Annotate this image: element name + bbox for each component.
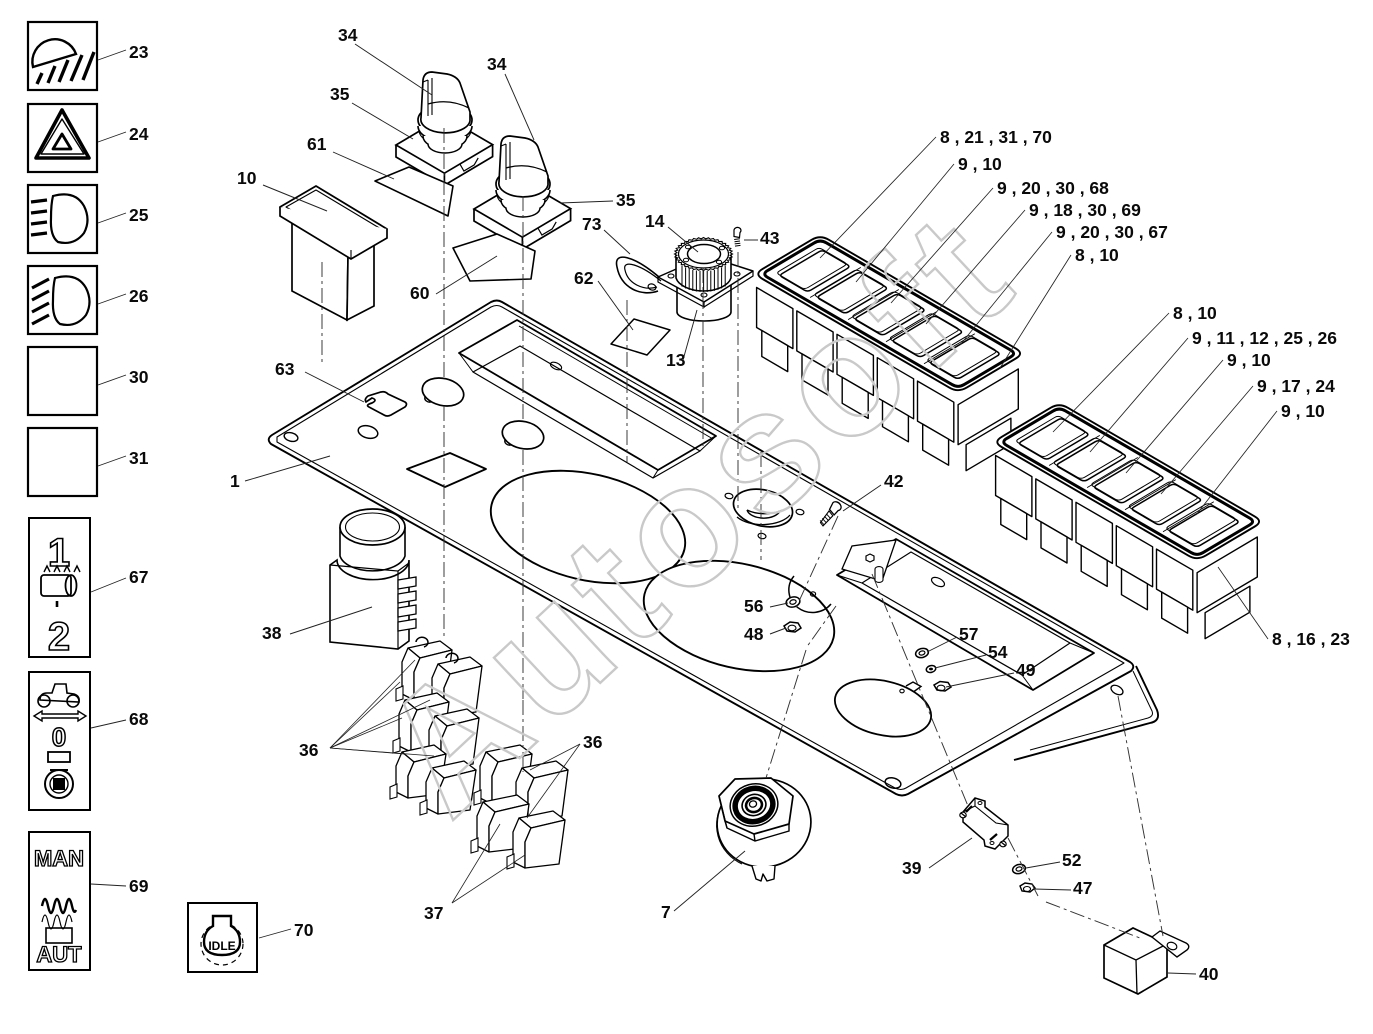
- svg-text:9 , 10: 9 , 10: [1227, 350, 1271, 370]
- svg-text:70: 70: [294, 920, 314, 940]
- svg-text:9 , 11 , 12 , 25 , 26: 9 , 11 , 12 , 25 , 26: [1192, 328, 1337, 348]
- svg-text:49: 49: [1016, 660, 1036, 680]
- svg-text:0: 0: [52, 722, 66, 752]
- svg-text:IDLE: IDLE: [208, 939, 235, 953]
- svg-text:37: 37: [424, 903, 443, 923]
- svg-text:14: 14: [645, 211, 665, 231]
- svg-text:MAN: MAN: [34, 846, 84, 871]
- svg-text:67: 67: [129, 567, 148, 587]
- svg-text:54: 54: [988, 642, 1008, 662]
- svg-text:23: 23: [129, 42, 149, 62]
- svg-text:62: 62: [574, 268, 594, 288]
- svg-text:48: 48: [744, 624, 764, 644]
- svg-text:8 , 10: 8 , 10: [1075, 245, 1119, 265]
- svg-text:35: 35: [330, 84, 350, 104]
- svg-text:7: 7: [661, 902, 671, 922]
- svg-text:8 , 16 , 23: 8 , 16 , 23: [1272, 629, 1350, 649]
- svg-text:34: 34: [338, 25, 358, 45]
- svg-text:9 , 18 , 30 , 69: 9 , 18 , 30 , 69: [1029, 200, 1141, 220]
- svg-text:2: 2: [48, 615, 70, 659]
- svg-text:9 , 10: 9 , 10: [958, 154, 1002, 174]
- svg-text:52: 52: [1062, 850, 1082, 870]
- svg-text:63: 63: [275, 359, 295, 379]
- svg-text:40: 40: [1199, 964, 1219, 984]
- svg-text:31: 31: [129, 448, 149, 468]
- svg-text:42: 42: [884, 471, 904, 491]
- svg-text:1: 1: [48, 531, 70, 575]
- svg-text:68: 68: [129, 709, 149, 729]
- svg-text:36: 36: [299, 740, 319, 760]
- svg-text:47: 47: [1073, 878, 1092, 898]
- svg-text:9 , 20 , 30 , 68: 9 , 20 , 30 , 68: [997, 178, 1109, 198]
- svg-text:43: 43: [760, 228, 780, 248]
- svg-text:26: 26: [129, 286, 149, 306]
- svg-text:9 , 10: 9 , 10: [1281, 401, 1325, 421]
- svg-text:38: 38: [262, 623, 282, 643]
- svg-text:56: 56: [744, 596, 764, 616]
- svg-text:60: 60: [410, 283, 430, 303]
- svg-text:39: 39: [902, 858, 922, 878]
- svg-text:9 , 17 , 24: 9 , 17 , 24: [1257, 376, 1335, 396]
- svg-text:8 , 21 , 31 , 70: 8 , 21 , 31 , 70: [940, 127, 1052, 147]
- svg-text:35: 35: [616, 190, 636, 210]
- svg-text:10: 10: [237, 168, 257, 188]
- svg-text:61: 61: [307, 134, 327, 154]
- svg-text:34: 34: [487, 54, 507, 74]
- svg-text:30: 30: [129, 367, 149, 387]
- svg-text:69: 69: [129, 876, 149, 896]
- svg-text:25: 25: [129, 205, 149, 225]
- svg-text:57: 57: [959, 624, 978, 644]
- svg-text:13: 13: [666, 350, 686, 370]
- svg-text:8 , 10: 8 , 10: [1173, 303, 1217, 323]
- svg-text:1: 1: [230, 471, 240, 491]
- svg-text:9 , 20 , 30 , 67: 9 , 20 , 30 , 67: [1056, 222, 1168, 242]
- svg-text:24: 24: [129, 124, 149, 144]
- svg-text:AUT: AUT: [36, 942, 82, 967]
- svg-text:73: 73: [582, 214, 602, 234]
- svg-text:36: 36: [583, 732, 603, 752]
